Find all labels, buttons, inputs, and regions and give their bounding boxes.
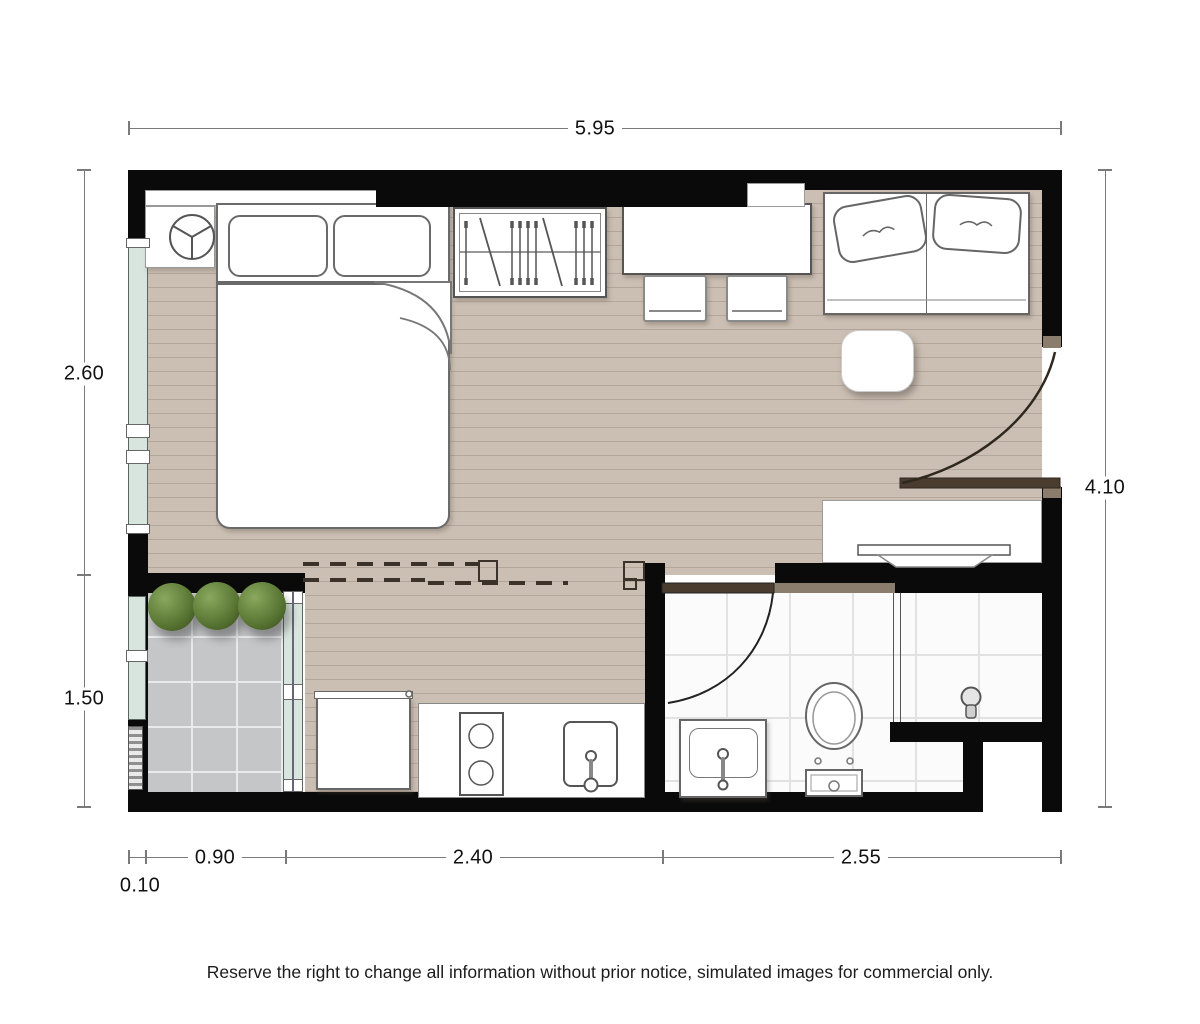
sofa (823, 192, 1030, 315)
wall-step-vertical (963, 742, 983, 812)
dim-label-top: 5.95 (568, 118, 622, 141)
dim-label-right: 4.10 (1078, 477, 1132, 500)
wall-top (128, 170, 1062, 190)
entrance-jamb-bottom (1043, 486, 1061, 498)
sofa-divider-line (926, 194, 927, 313)
wall-step-horizontal (890, 722, 1062, 742)
chair-seat-line (732, 310, 782, 312)
bathroom-door-frame-strip (665, 583, 895, 593)
wall-bathroom-top (775, 563, 1042, 583)
bed-blanket (216, 283, 450, 529)
stove (459, 712, 504, 796)
chair-left (643, 275, 707, 322)
bed-pillow-right (333, 215, 431, 277)
wall-top-bulkhead (376, 190, 747, 207)
dim-tick (1098, 806, 1112, 808)
tv-console (822, 500, 1042, 563)
bedroom-window-mullion2 (126, 450, 150, 464)
dim-label-balcony: 0.90 (188, 847, 242, 870)
bathroom-sink-basin (689, 728, 758, 778)
dim-label-left-upper: 2.60 (57, 363, 111, 386)
dim-line-left (84, 170, 85, 808)
plant-3 (238, 582, 286, 630)
dim-tick (128, 850, 130, 864)
sliding-partition-track-a (303, 562, 478, 566)
sliding-door-track-line (292, 591, 294, 792)
plant-2 (193, 582, 241, 630)
bedside-table (145, 206, 215, 268)
wall-bathroom-left (645, 563, 665, 812)
floor-plan-canvas: 5.95 2.60 1.50 4.10 0.90 2.40 2.55 0.10 … (0, 0, 1200, 1024)
plant-1 (148, 583, 196, 631)
dim-tick (77, 806, 91, 808)
sliding-partition-track-b (303, 578, 425, 582)
dim-line-bottom (128, 857, 1062, 858)
sliding-partition-pocket-1 (478, 560, 498, 582)
dim-tick (145, 850, 147, 864)
dim-tick (128, 121, 130, 135)
shower-glass-partition (893, 593, 901, 722)
wardrobe-inner (459, 213, 601, 292)
dim-label-offset: 0.10 (113, 875, 167, 898)
balcony-vent-grille (128, 726, 143, 790)
top-wall-window (747, 183, 805, 207)
shower-floor (983, 593, 1042, 722)
bedroom-window-mullion1 (126, 424, 150, 438)
wall-bathroom-top2 (895, 583, 1042, 593)
chair-right (726, 275, 788, 322)
dim-tick (77, 574, 91, 576)
dim-label-bathroom: 2.55 (834, 847, 888, 870)
dim-label-left-lower: 1.50 (57, 688, 111, 711)
dim-tick (1060, 850, 1062, 864)
bedroom-window-cap-bottom (126, 524, 150, 534)
ottoman (841, 330, 914, 392)
bedroom-window-cap-top (126, 238, 150, 248)
refrigerator-handle (314, 691, 413, 699)
entrance-jamb-top (1043, 336, 1061, 348)
dim-tick (1098, 169, 1112, 171)
balcony-window-mullion (126, 650, 148, 662)
entrance-door-opening (1042, 347, 1062, 487)
bed-pillow-left (228, 215, 328, 277)
kitchen-sink (563, 721, 618, 787)
sliding-partition-track-c (428, 581, 568, 585)
desk (622, 203, 812, 275)
chair-seat-line (649, 310, 701, 312)
dim-tick (285, 850, 287, 864)
dim-tick (1060, 121, 1062, 135)
dim-tick (662, 850, 664, 864)
sliding-partition-pocket-2b (623, 578, 637, 590)
dim-label-kitchen: 2.40 (446, 847, 500, 870)
dim-tick (77, 169, 91, 171)
refrigerator (316, 697, 411, 790)
disclaimer-text: Reserve the right to change all informat… (0, 962, 1200, 983)
bedroom-window (128, 246, 148, 532)
